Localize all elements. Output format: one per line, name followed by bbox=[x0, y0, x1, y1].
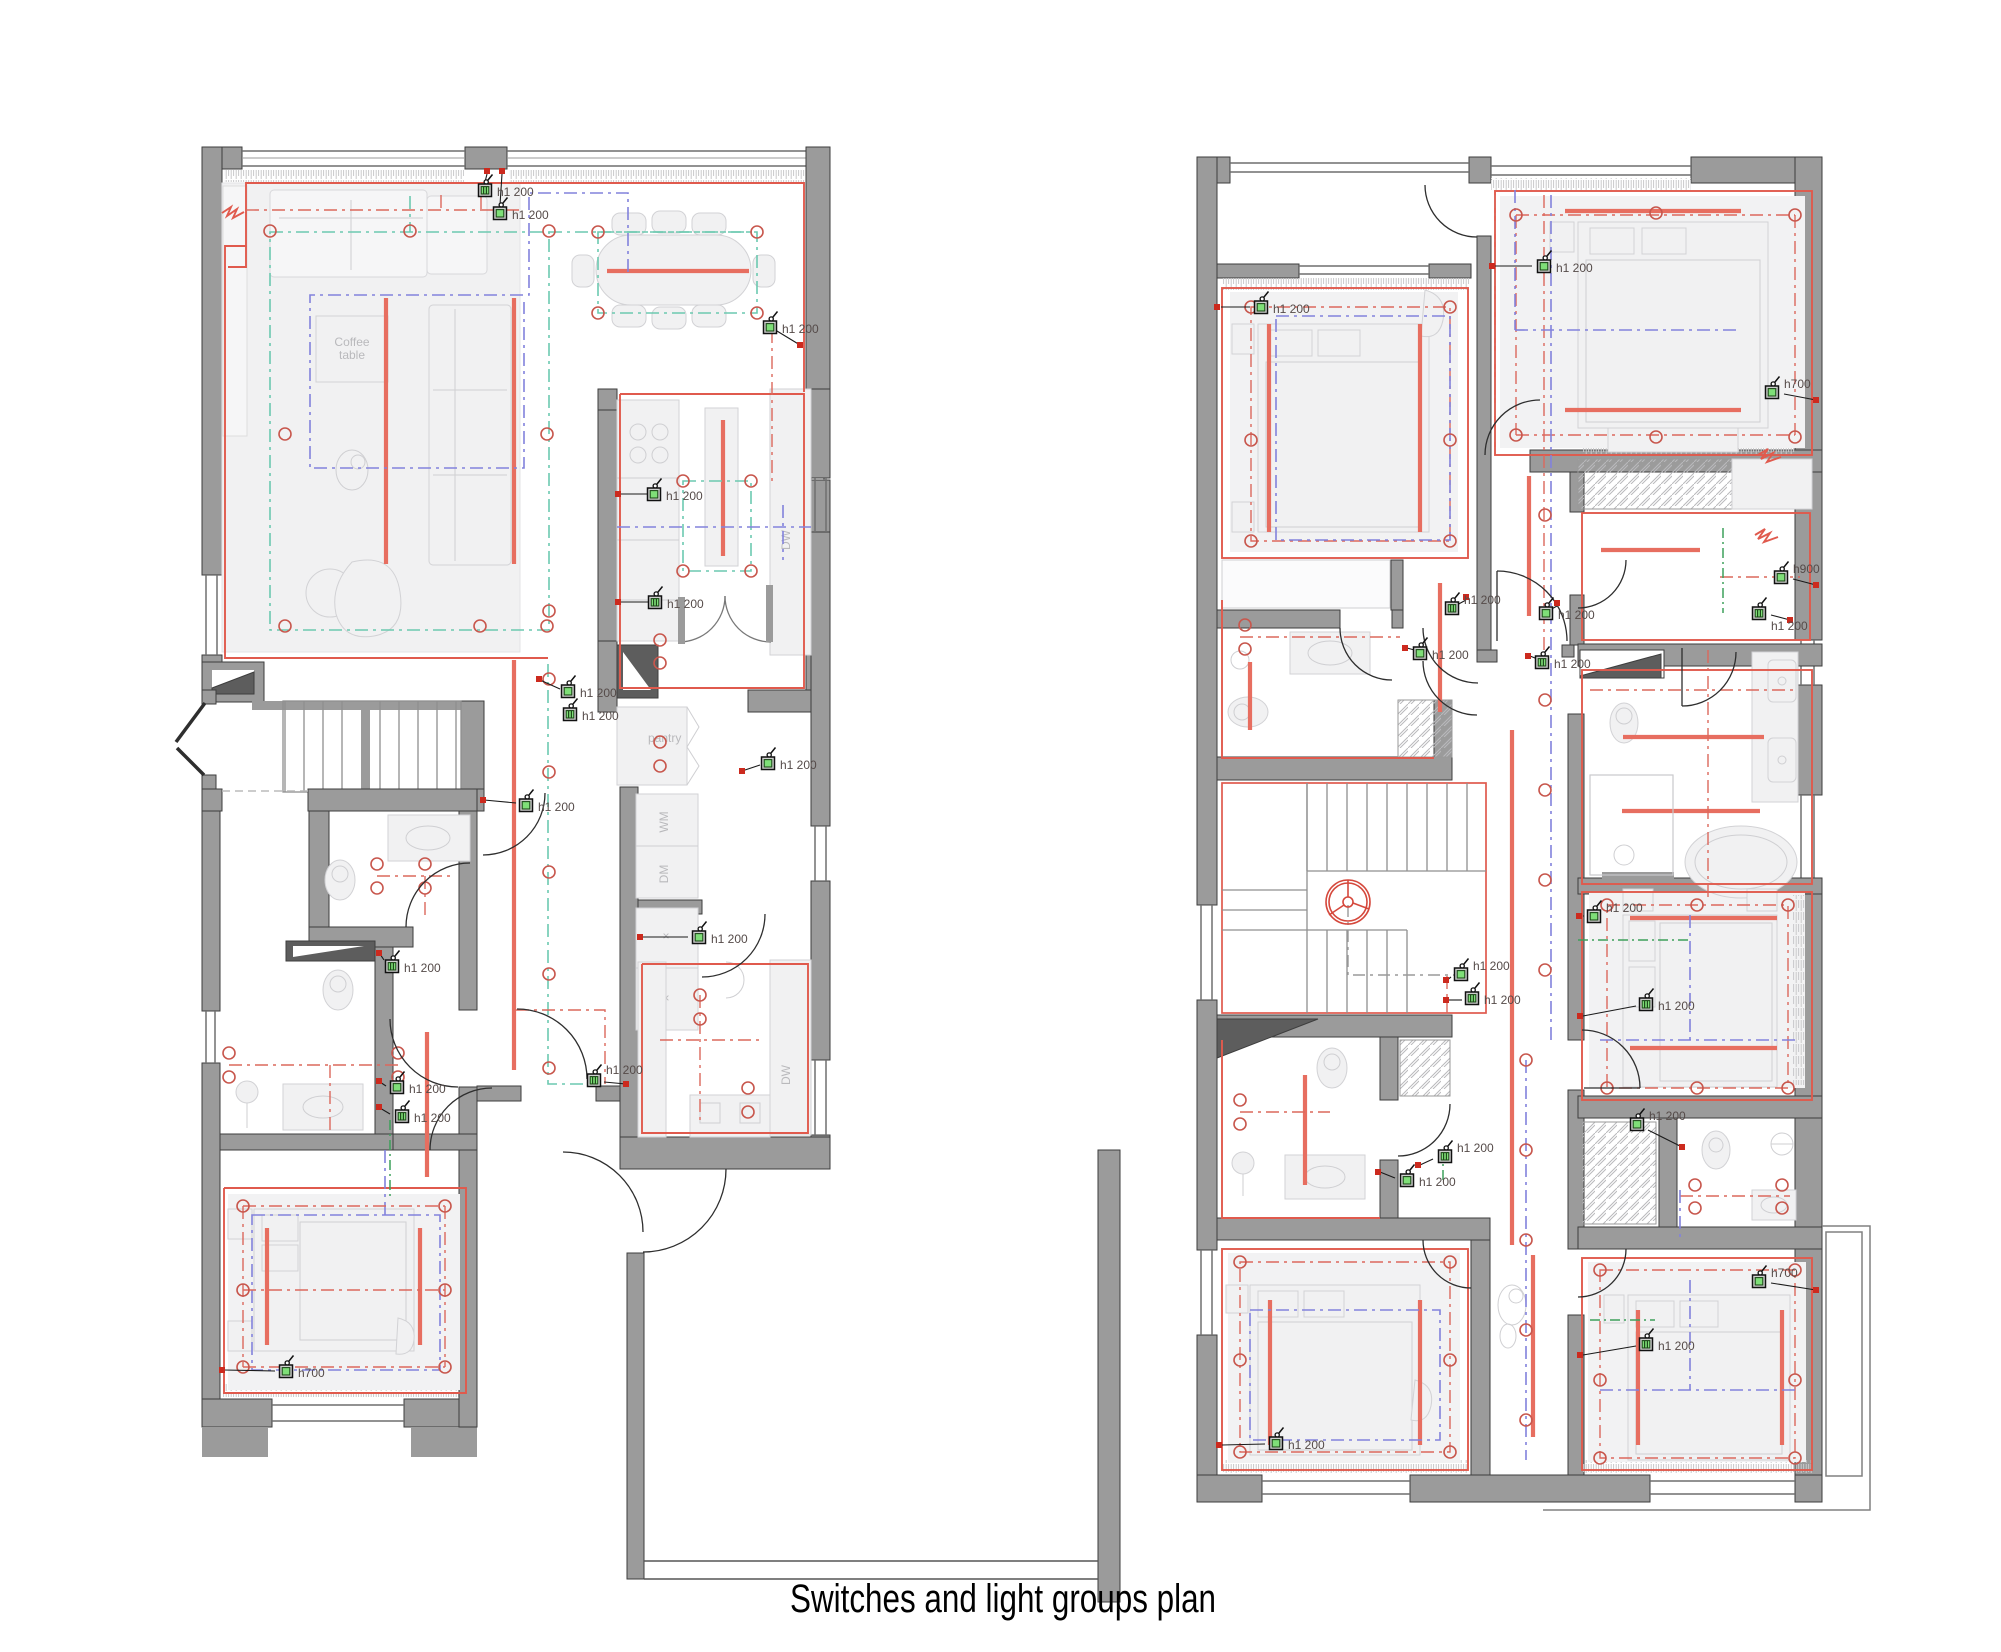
svg-text:Coffee: Coffee bbox=[334, 335, 369, 349]
svg-text:h1 200: h1 200 bbox=[582, 709, 619, 723]
svg-text:h1 200: h1 200 bbox=[1432, 648, 1469, 662]
svg-text:h1 200: h1 200 bbox=[580, 686, 617, 700]
svg-text:h1 200: h1 200 bbox=[404, 961, 441, 975]
svg-text:h1 200: h1 200 bbox=[711, 932, 748, 946]
svg-text:×: × bbox=[662, 929, 669, 943]
svg-text:h1 200: h1 200 bbox=[1288, 1438, 1325, 1452]
svg-text:h1 200: h1 200 bbox=[1464, 593, 1501, 607]
svg-text:h1 200: h1 200 bbox=[1556, 261, 1593, 275]
svg-text:DM: DM bbox=[657, 865, 671, 884]
svg-text:h700: h700 bbox=[298, 1366, 325, 1380]
svg-text:h1 200: h1 200 bbox=[666, 489, 703, 503]
svg-text:h1 200: h1 200 bbox=[782, 322, 819, 336]
svg-text:h1 200: h1 200 bbox=[414, 1111, 451, 1125]
svg-text:Switches and light groups plan: Switches and light groups plan bbox=[790, 1577, 1216, 1621]
svg-text:h900: h900 bbox=[1793, 562, 1820, 576]
svg-text:h1 200: h1 200 bbox=[1457, 1141, 1494, 1155]
svg-text:h1 200: h1 200 bbox=[1606, 901, 1643, 915]
svg-text:h1 200: h1 200 bbox=[1273, 302, 1310, 316]
svg-text:h1 200: h1 200 bbox=[780, 758, 817, 772]
svg-text:h1 200: h1 200 bbox=[1658, 1339, 1695, 1353]
svg-text:h1 200: h1 200 bbox=[1484, 993, 1521, 1007]
svg-text:h1 200: h1 200 bbox=[497, 185, 534, 199]
svg-text:DW: DW bbox=[779, 1064, 793, 1085]
svg-text:DW: DW bbox=[779, 529, 793, 550]
svg-text:WM: WM bbox=[657, 811, 671, 832]
svg-text:h1 200: h1 200 bbox=[1558, 608, 1595, 622]
svg-text:h1 200: h1 200 bbox=[1771, 619, 1808, 633]
svg-text:h1 200: h1 200 bbox=[1649, 1109, 1686, 1123]
svg-text:h700: h700 bbox=[1784, 377, 1811, 391]
svg-text:h700: h700 bbox=[1771, 1266, 1798, 1280]
svg-text:h1 200: h1 200 bbox=[512, 208, 549, 222]
svg-text:h1 200: h1 200 bbox=[409, 1082, 446, 1096]
svg-text:h1 200: h1 200 bbox=[667, 597, 704, 611]
svg-text:h1 200: h1 200 bbox=[606, 1063, 643, 1077]
svg-text:h1 200: h1 200 bbox=[538, 800, 575, 814]
svg-text:h1 200: h1 200 bbox=[1473, 959, 1510, 973]
svg-text:h1 200: h1 200 bbox=[1658, 999, 1695, 1013]
svg-text:h1 200: h1 200 bbox=[1554, 657, 1591, 671]
svg-text:h1 200: h1 200 bbox=[1419, 1175, 1456, 1189]
svg-text:table: table bbox=[339, 348, 365, 362]
